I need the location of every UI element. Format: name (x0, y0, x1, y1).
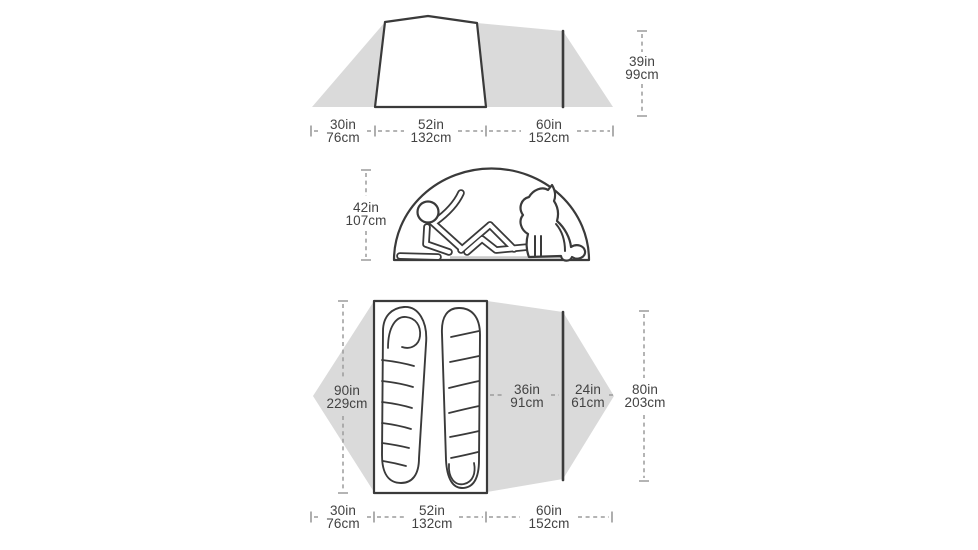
diagram-artwork (0, 0, 978, 550)
dim-floor-overall-length: 80in 203cm (624, 383, 665, 409)
dim-floor-vestibule-depth: 36in 91cm (510, 383, 543, 409)
dim-floor-interior-length: 90in 229cm (326, 384, 367, 410)
person-head (418, 202, 439, 223)
sleeping-bag-left (382, 307, 426, 483)
dim-side-right-vestibule-width: 60in 152cm (528, 118, 569, 144)
dim-side-left-vestibule-width: 30in 76cm (326, 118, 359, 144)
side-view-diagram (311, 16, 647, 137)
dim-floor-body-width: 52in 132cm (411, 504, 452, 530)
tent-body-outline-side (375, 16, 486, 107)
dim-floor-left-width: 30in 76cm (326, 504, 359, 530)
floor-plan-diagram (311, 301, 649, 523)
front-view-diagram (361, 169, 589, 261)
dim-floor-vestibule-extension: 24in 61cm (571, 383, 604, 409)
dim-floor-right-width: 60in 152cm (528, 504, 569, 530)
dim-front-height: 42in 107cm (345, 201, 386, 227)
dim-side-body-width: 52in 132cm (410, 118, 451, 144)
dim-side-height: 39in 99cm (625, 55, 658, 81)
sleeping-bag-right (442, 308, 480, 488)
tent-dimensions-diagram: 30in 76cm 52in 132cm 60in 152cm 39in 99c… (0, 0, 978, 550)
